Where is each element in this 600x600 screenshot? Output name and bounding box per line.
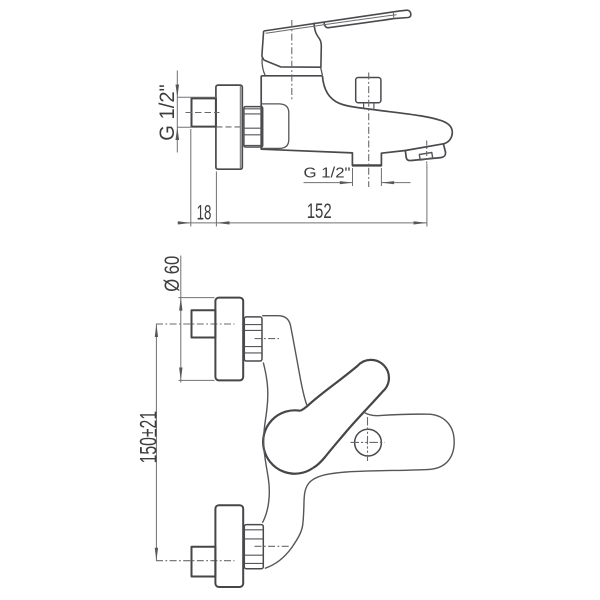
svg-text:G 1/2": G 1/2": [155, 84, 179, 141]
svg-text:18: 18: [197, 202, 212, 225]
svg-text:150±21: 150±21: [135, 411, 162, 464]
svg-text:Ø 60: Ø 60: [160, 256, 184, 292]
svg-text:G 1/2": G 1/2": [304, 165, 351, 181]
svg-text:152: 152: [307, 200, 332, 223]
